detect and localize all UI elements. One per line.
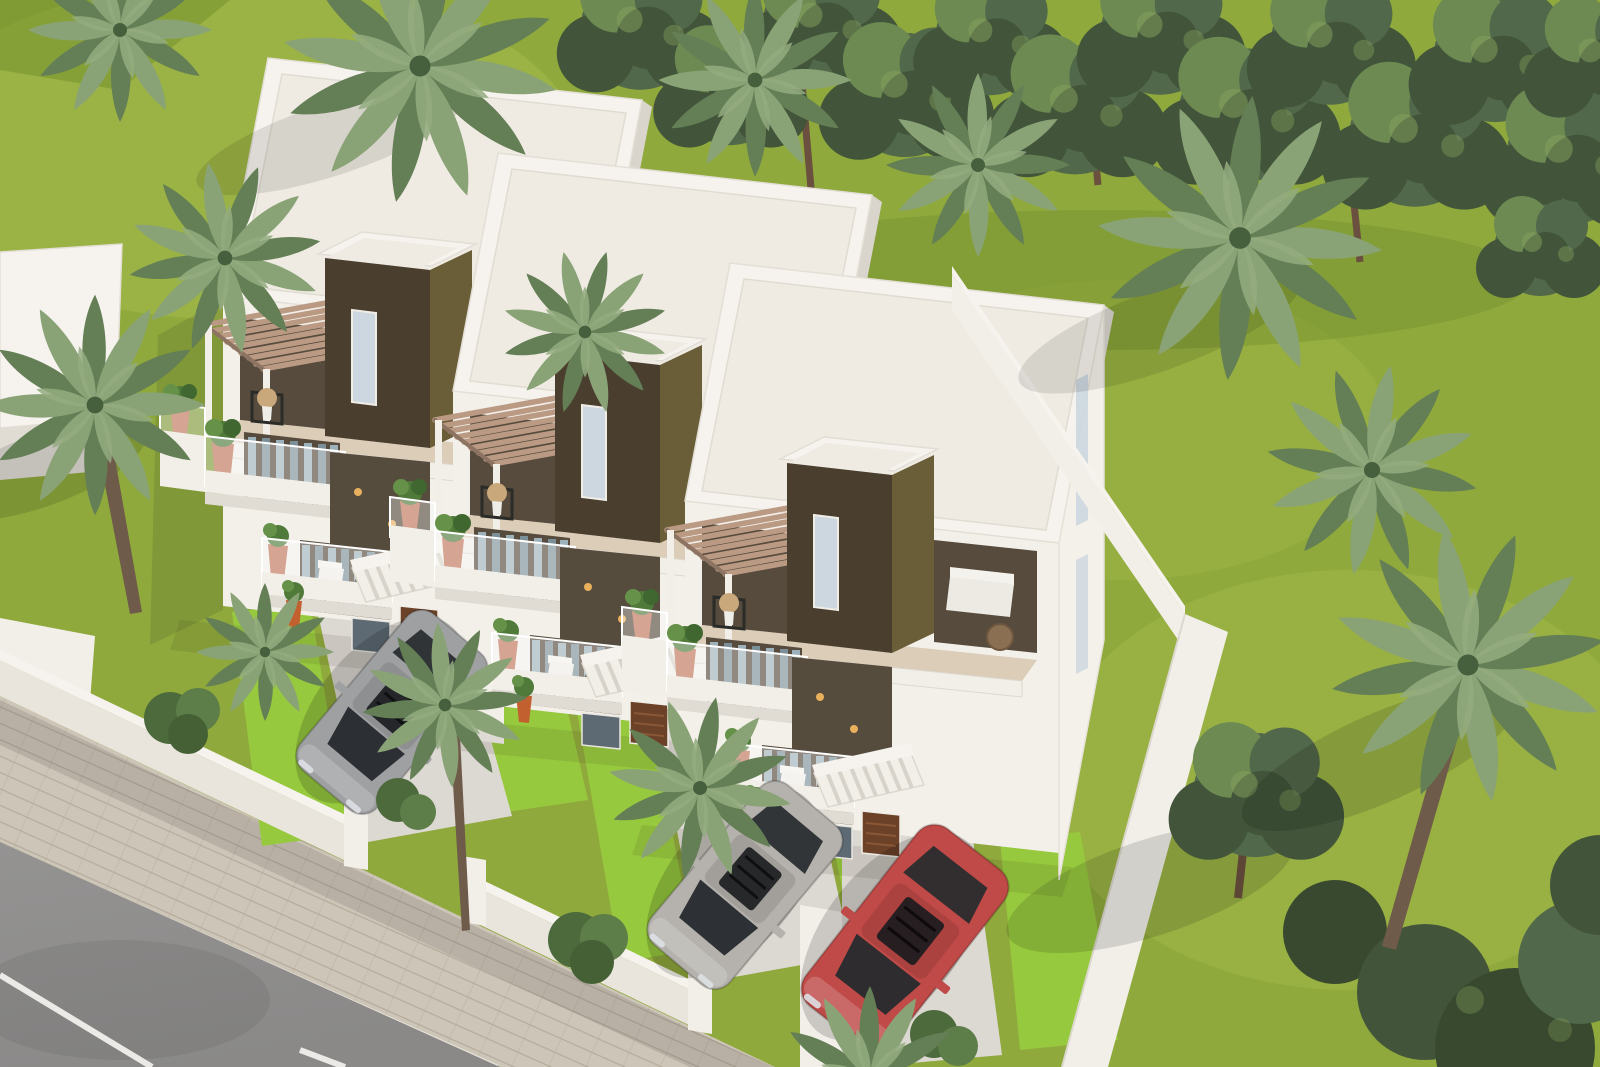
- side-window: [1076, 554, 1088, 674]
- render-canvas: 3d-architectural-rendering: [0, 0, 1600, 1067]
- aerial-render: 3d-architectural-rendering: [0, 0, 1600, 1067]
